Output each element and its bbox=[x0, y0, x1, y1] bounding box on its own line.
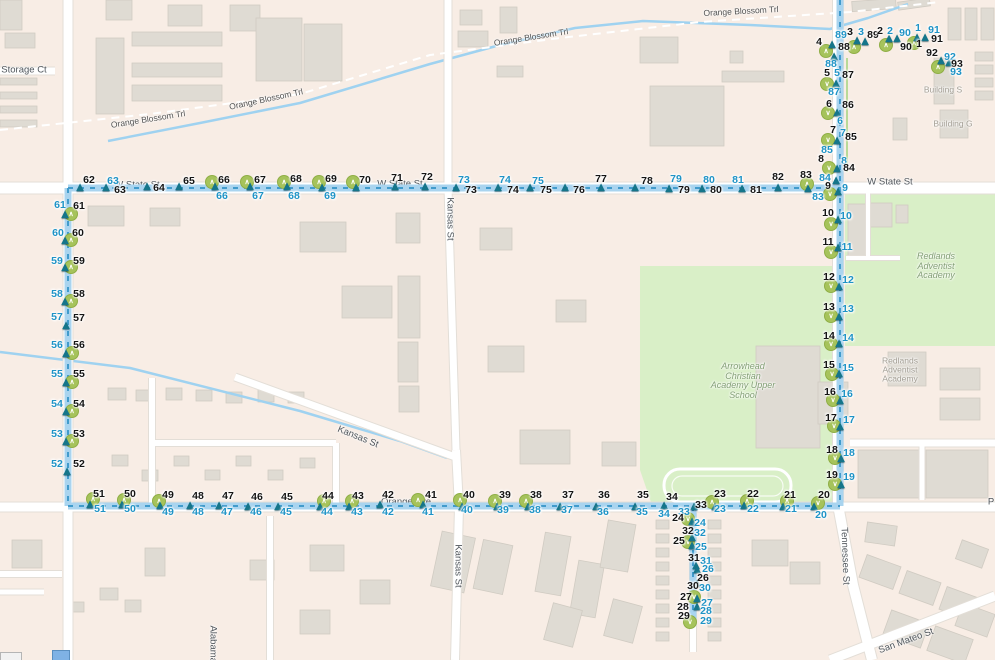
stop-number-black: 11 bbox=[822, 237, 833, 247]
stop-number-black: 80 bbox=[710, 185, 722, 195]
stop-number-cyan: 50 bbox=[124, 504, 136, 514]
stop-number-cyan: 29 bbox=[700, 616, 712, 626]
stop-number-cyan: 1 bbox=[915, 23, 921, 33]
stop-number-cyan: 11 bbox=[841, 242, 852, 252]
stop-number-black: 57 bbox=[73, 313, 85, 323]
stop-number-cyan: 51 bbox=[94, 504, 106, 514]
stop-number-cyan: 22 bbox=[747, 504, 759, 514]
stop-number-black: 61 bbox=[73, 201, 85, 211]
stop-number-cyan: 13 bbox=[842, 304, 854, 314]
stop-number-cyan: 93 bbox=[950, 67, 962, 77]
stop-number-black: 10 bbox=[822, 208, 834, 218]
stop-number-cyan: 6 bbox=[837, 116, 843, 126]
stop-triangle-icon[interactable]: ▲ bbox=[559, 181, 572, 193]
stop-number-black: 49 bbox=[162, 490, 174, 500]
stop-number-cyan: 18 bbox=[843, 448, 855, 458]
stop-number-cyan: 3 bbox=[858, 27, 864, 37]
stop-number-cyan: 68 bbox=[288, 191, 300, 201]
stop-number-black: 15 bbox=[823, 360, 835, 370]
map-canvas[interactable]: W State StW State StOrange Ave Storage C… bbox=[0, 0, 995, 660]
stop-number-black: 59 bbox=[73, 256, 85, 266]
map-control-fragment[interactable] bbox=[52, 650, 70, 660]
stop-number-cyan: 20 bbox=[815, 510, 827, 520]
map-attribution-fragment bbox=[0, 652, 22, 660]
stop-number-cyan: 17 bbox=[843, 415, 855, 425]
stop-number-black: 50 bbox=[124, 489, 136, 499]
stop-number-black: 65 bbox=[183, 176, 195, 186]
stop-number-cyan: 39 bbox=[497, 505, 509, 515]
stop-number-black: 68 bbox=[290, 174, 302, 184]
stop-number-cyan: 57 bbox=[51, 312, 63, 322]
stop-number-black: 30 bbox=[687, 581, 699, 591]
stop-number-black: 34 bbox=[666, 492, 678, 502]
stop-number-black: 9 bbox=[825, 181, 831, 191]
stop-number-black: 7 bbox=[830, 125, 836, 135]
stop-number-black: 66 bbox=[218, 175, 230, 185]
stop-number-black: 82 bbox=[772, 172, 784, 182]
stop-number-black: 86 bbox=[842, 100, 854, 110]
stop-number-cyan: 5 bbox=[834, 68, 840, 78]
stop-number-black: 88 bbox=[838, 42, 850, 52]
stop-number-cyan: 12 bbox=[842, 275, 854, 285]
stop-number-black: 84 bbox=[843, 163, 855, 173]
stop-number-cyan: 79 bbox=[670, 174, 682, 184]
stop-markers-layer: ▲62▲6363▲64▲65∧▲6666∧▲6767∧▲6868∧▲6969∧▲… bbox=[0, 0, 995, 660]
stop-number-black: 46 bbox=[251, 492, 263, 502]
stop-number-cyan: 55 bbox=[51, 369, 63, 379]
stop-number-cyan: 46 bbox=[250, 507, 262, 517]
stop-number-black: 44 bbox=[322, 491, 334, 501]
stop-number-black: 87 bbox=[842, 70, 854, 80]
stop-number-black: 13 bbox=[823, 302, 835, 312]
stop-number-black: 4 bbox=[816, 37, 822, 47]
stop-number-cyan: 83 bbox=[812, 192, 824, 202]
stop-number-black: 51 bbox=[93, 489, 105, 499]
stop-number-cyan: 63 bbox=[107, 176, 119, 186]
stop-number-black: 1 bbox=[916, 39, 922, 49]
stop-number-black: 48 bbox=[192, 491, 204, 501]
stop-number-cyan: 21 bbox=[785, 504, 797, 514]
stop-number-black: 42 bbox=[382, 490, 394, 500]
stop-triangle-icon[interactable]: ▲ bbox=[141, 180, 154, 192]
stop-number-black: 47 bbox=[222, 491, 234, 501]
stop-number-cyan: 48 bbox=[192, 507, 204, 517]
stop-number-black: 72 bbox=[421, 172, 433, 182]
stop-number-cyan: 42 bbox=[382, 507, 394, 517]
stop-number-cyan: 16 bbox=[841, 389, 853, 399]
stop-number-black: 56 bbox=[73, 340, 85, 350]
stop-number-cyan: 75 bbox=[532, 176, 544, 186]
stop-number-black: 69 bbox=[325, 174, 337, 184]
stop-number-black: 17 bbox=[825, 413, 837, 423]
stop-number-black: 71 bbox=[391, 173, 403, 183]
stop-number-cyan: 19 bbox=[843, 472, 855, 482]
stop-number-black: 33 bbox=[695, 500, 707, 510]
stop-number-cyan: 36 bbox=[597, 507, 609, 517]
stop-number-cyan: 56 bbox=[51, 340, 63, 350]
stop-number-cyan: 34 bbox=[658, 509, 670, 519]
stop-number-black: 79 bbox=[678, 185, 690, 195]
stop-number-black: 38 bbox=[530, 490, 542, 500]
stop-number-black: 12 bbox=[823, 272, 835, 282]
stop-number-cyan: 61 bbox=[54, 200, 66, 210]
stop-number-cyan: 66 bbox=[216, 191, 228, 201]
stop-number-black: 55 bbox=[73, 369, 85, 379]
stop-number-black: 78 bbox=[641, 176, 653, 186]
stop-number-black: 73 bbox=[465, 185, 477, 195]
stop-number-black: 23 bbox=[714, 489, 726, 499]
stop-number-black: 64 bbox=[153, 183, 165, 193]
stop-number-cyan: 80 bbox=[703, 175, 715, 185]
stop-number-cyan: 47 bbox=[221, 507, 233, 517]
stop-number-cyan: 67 bbox=[252, 191, 264, 201]
stop-number-black: 5 bbox=[824, 68, 830, 78]
stop-number-black: 67 bbox=[254, 175, 266, 185]
stop-number-cyan: 81 bbox=[732, 175, 744, 185]
stop-number-black: 6 bbox=[826, 99, 832, 109]
stop-number-black: 60 bbox=[72, 228, 84, 238]
stop-number-black: 39 bbox=[499, 490, 511, 500]
stop-number-black: 53 bbox=[73, 429, 85, 439]
stop-number-cyan: 87 bbox=[828, 87, 840, 97]
stop-number-cyan: 43 bbox=[351, 507, 363, 517]
stop-number-black: 81 bbox=[750, 185, 762, 195]
stop-number-cyan: 52 bbox=[51, 459, 63, 469]
stop-number-cyan: 91 bbox=[928, 25, 940, 35]
stop-number-black: 22 bbox=[747, 489, 759, 499]
stop-number-cyan: 9 bbox=[842, 183, 848, 193]
stop-number-black: 76 bbox=[573, 185, 585, 195]
stop-number-cyan: 26 bbox=[702, 564, 714, 574]
stop-number-black: 37 bbox=[562, 490, 574, 500]
stop-number-cyan: 45 bbox=[280, 507, 292, 517]
stop-number-cyan: 74 bbox=[499, 175, 511, 185]
stop-number-cyan: 41 bbox=[422, 507, 434, 517]
stop-number-cyan: 53 bbox=[51, 429, 63, 439]
stop-number-black: 2 bbox=[877, 26, 883, 36]
stop-number-cyan: 89 bbox=[835, 30, 847, 40]
stop-triangle-icon[interactable]: ▲ bbox=[629, 181, 642, 193]
stop-number-cyan: 35 bbox=[636, 507, 648, 517]
stop-number-black: 45 bbox=[281, 492, 293, 502]
stop-number-cyan: 14 bbox=[842, 333, 854, 343]
stop-number-cyan: 73 bbox=[458, 175, 470, 185]
stop-number-cyan: 2 bbox=[887, 26, 893, 36]
stop-number-cyan: 32 bbox=[694, 528, 706, 538]
stop-number-black: 24 bbox=[672, 513, 684, 523]
stop-number-cyan: 15 bbox=[842, 363, 854, 373]
stop-number-black: 20 bbox=[818, 490, 830, 500]
stop-number-cyan: 40 bbox=[461, 505, 473, 515]
stop-number-black: 25 bbox=[673, 536, 685, 546]
stop-number-black: 29 bbox=[678, 611, 690, 621]
stop-number-black: 3 bbox=[847, 27, 853, 37]
stop-number-cyan: 60 bbox=[52, 228, 64, 238]
stop-number-cyan: 69 bbox=[324, 191, 336, 201]
stop-number-cyan: 10 bbox=[840, 211, 852, 221]
stop-number-black: 43 bbox=[352, 491, 364, 501]
stop-number-cyan: 44 bbox=[321, 507, 333, 517]
stop-number-black: 35 bbox=[637, 490, 649, 500]
stop-number-black: 90 bbox=[900, 42, 912, 52]
stop-number-black: 52 bbox=[73, 459, 85, 469]
stop-number-cyan: 30 bbox=[699, 583, 711, 593]
stop-number-black: 83 bbox=[800, 170, 812, 180]
stop-number-black: 21 bbox=[784, 490, 796, 500]
stop-number-cyan: 90 bbox=[899, 28, 911, 38]
stop-number-cyan: 58 bbox=[51, 289, 63, 299]
stop-number-black: 58 bbox=[73, 289, 85, 299]
stop-number-black: 36 bbox=[598, 490, 610, 500]
stop-number-black: 14 bbox=[823, 331, 835, 341]
stop-number-black: 31 bbox=[688, 553, 700, 563]
stop-number-black: 19 bbox=[826, 470, 838, 480]
stop-number-black: 74 bbox=[507, 185, 519, 195]
stop-number-cyan: 38 bbox=[529, 505, 541, 515]
stop-number-black: 8 bbox=[818, 154, 824, 164]
stop-number-cyan: 59 bbox=[51, 256, 63, 266]
stop-number-black: 54 bbox=[73, 399, 85, 409]
stop-number-black: 85 bbox=[845, 132, 857, 142]
stop-number-cyan: 54 bbox=[51, 399, 63, 409]
stop-number-black: 70 bbox=[359, 175, 371, 185]
stop-number-black: 41 bbox=[425, 490, 437, 500]
stop-number-cyan: 49 bbox=[162, 507, 174, 517]
stop-number-black: 92 bbox=[926, 48, 938, 58]
stop-number-black: 40 bbox=[463, 490, 475, 500]
stop-number-cyan: 25 bbox=[695, 542, 707, 552]
stop-number-cyan: 23 bbox=[714, 504, 726, 514]
stop-number-black: 16 bbox=[824, 387, 836, 397]
stop-number-black: 18 bbox=[826, 445, 838, 455]
stop-number-black: 77 bbox=[595, 174, 607, 184]
stop-number-black: 62 bbox=[83, 175, 95, 185]
stop-number-cyan: 37 bbox=[561, 505, 573, 515]
